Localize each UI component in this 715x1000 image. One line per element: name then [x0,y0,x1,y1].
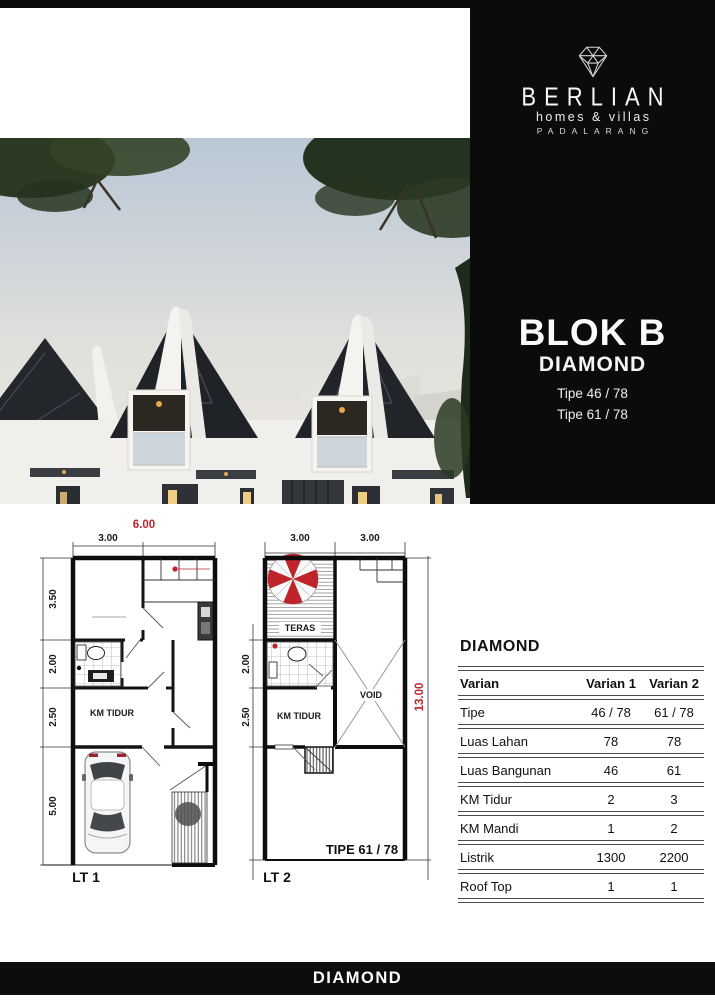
lt1-dim-500: 5.00 [48,796,59,816]
lt1-width-label: 3.00 [98,533,118,544]
table-divider [458,898,704,903]
lt2-bedroom-label: KM TIDUR [277,711,321,721]
block-series: DIAMOND [470,353,715,377]
block-type-2: Tipe 61 / 78 [470,407,715,422]
house-photo [0,138,470,504]
header-varian-1: Varian 1 [578,676,644,691]
lt2-dim-200: 2.00 [241,654,252,674]
header-varian-2: Varian 2 [644,676,704,691]
table-row: KM Tidur 2 3 [458,787,704,811]
lt1-garden [170,764,215,863]
brand-tagline: homes & villas [470,110,715,124]
lt1-bedroom-label: KM TIDUR [90,708,134,718]
lt2-right-dimension [405,556,431,880]
lt2-width-right: 3.00 [360,533,380,544]
header-varian: Varian [458,676,578,691]
table-row: Listrik 1300 2200 [458,845,704,869]
flyer-page: BERLIAN homes & villas PADALARANG BLOK B… [0,0,715,1000]
balcony-unit-a [128,390,190,470]
lt1-bathroom [75,642,121,686]
lt2-stairs [293,747,333,773]
lt1-total-width-label: 6.00 [133,519,155,531]
floorplan-lt1: 6.00 3.00 3.50 2.00 2.50 5.00 [30,512,230,897]
lt1-dim-250: 2.50 [48,707,59,727]
brand-location: PADALARANG [470,126,715,136]
lt2-bathroom [267,642,333,688]
lt2-teras: TERAS [267,554,333,638]
lt1-top-dimensions [73,542,215,558]
floorplan-lt2: 3.00 3.00 2.00 2.50 13.00 [235,512,445,897]
spec-header-row: Varian Varian 1 Varian 2 [458,671,704,695]
spec-table: DIAMOND Varian Varian 1 Varian 2 Tipe 46… [458,638,704,903]
table-row: Luas Lahan 78 78 [458,729,704,753]
block-type-1: Tipe 46 / 78 [470,386,715,401]
table-row: KM Mandi 1 2 [458,816,704,840]
lt2-total-height-label: 13.00 [414,683,426,712]
table-row: Roof Top 1 1 [458,874,704,898]
block-title: BLOK B [470,312,715,354]
lt1-red-marker [172,566,177,571]
brand-panel: BERLIAN homes & villas PADALARANG BLOK B… [470,0,715,504]
lt1-floor-label: LT 1 [72,869,100,885]
lt1-car-topview [82,752,133,853]
lt2-type-label: TIPE 61 / 78 [326,842,398,857]
balcony-unit-b [312,396,372,472]
lt2-void: VOID [335,640,405,747]
lt2-dim-250: 2.50 [241,707,252,727]
brand-name: BERLIAN [470,82,715,113]
house-photo-illustration [0,138,470,504]
spec-table-title: DIAMOND [460,638,704,656]
lt2-teras-label: TERAS [285,623,316,633]
diamond-wireframe-icon [470,44,715,80]
lt1-kitchen [143,558,215,640]
table-row: Tipe 46 / 78 61 / 78 [458,700,704,724]
lt2-width-left: 3.00 [290,533,310,544]
footer-bar: DIAMOND [0,962,715,995]
lt2-floor-label: LT 2 [263,869,291,885]
lt2-red-marker [272,643,277,648]
lt2-void-label: VOID [360,690,383,700]
lt2-closet [360,558,405,582]
lt1-dim-200: 2.00 [48,654,59,674]
table-row: Luas Bangunan 46 61 [458,758,704,782]
lt1-dim-350: 3.50 [48,589,59,609]
footer-label: DIAMOND [313,969,402,987]
